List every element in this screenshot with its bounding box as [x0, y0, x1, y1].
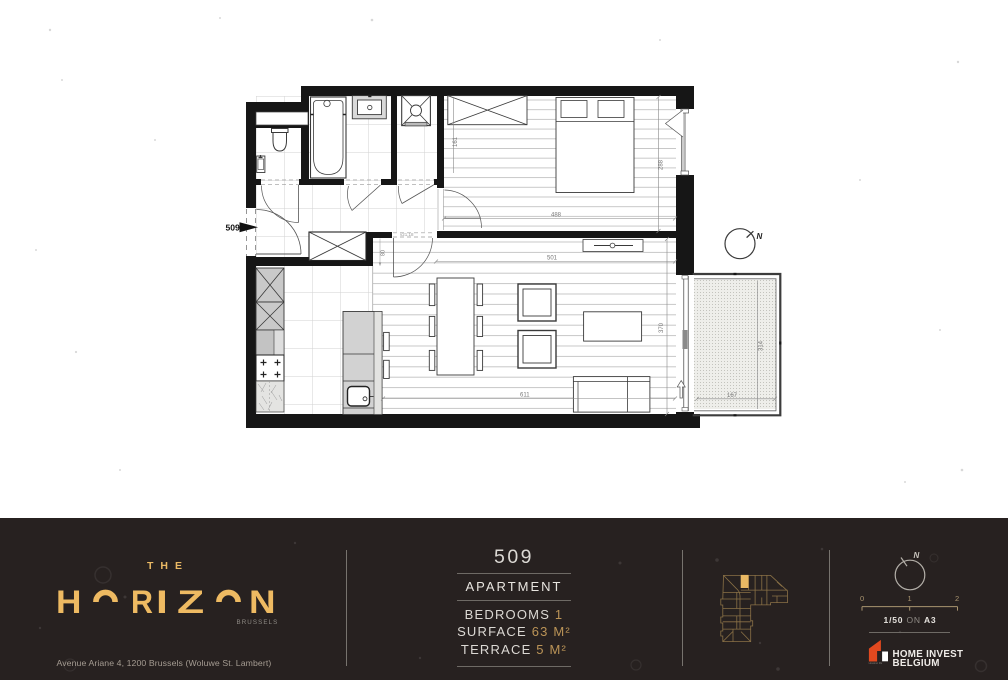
svg-text:161: 161 — [453, 136, 459, 147]
svg-text:509: 509 — [225, 223, 240, 233]
svg-text:N: N — [757, 232, 763, 241]
svg-text:80: 80 — [381, 250, 387, 256]
svg-text:611: 611 — [520, 393, 530, 399]
svg-text:1: 1 — [908, 594, 912, 603]
svg-text:v21.18: v21.18 — [400, 232, 414, 237]
svg-text:0: 0 — [860, 594, 864, 603]
svg-text:488: 488 — [551, 213, 562, 219]
svg-text:2: 2 — [955, 594, 959, 603]
svg-text:288: 288 — [659, 159, 665, 170]
svg-text:370: 370 — [659, 322, 665, 333]
svg-text:501: 501 — [547, 256, 558, 262]
svg-text:Housing life: Housing life — [869, 661, 883, 664]
svg-text:167: 167 — [727, 393, 738, 399]
svg-text:314: 314 — [759, 340, 765, 351]
